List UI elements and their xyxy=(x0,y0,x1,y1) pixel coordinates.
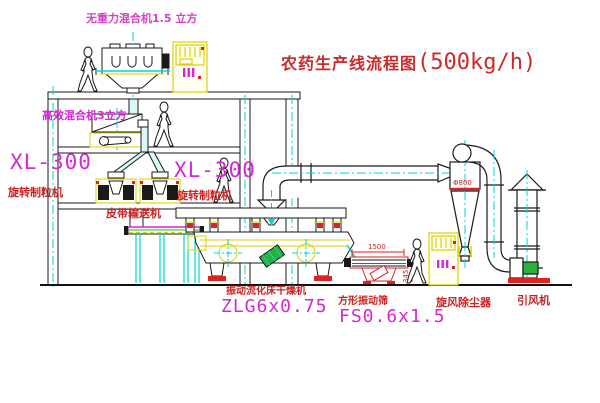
person-figure xyxy=(154,102,173,146)
dryer-feet xyxy=(208,263,332,281)
control-cabinet-ground xyxy=(429,233,458,285)
label-top-mixer: 无重力混合机1.5 立方 xyxy=(86,13,197,24)
label-sieve-model: FS0.6x1.5 xyxy=(339,308,446,326)
cabinet-meter-marks xyxy=(437,260,448,268)
cad-flow-diagram: 农药生产线流程图(500kg/h) 无重力混合机1.5 立方 高效混合机3立方 … xyxy=(0,0,600,403)
person-figure xyxy=(78,47,97,91)
label-granulator-mid-model: XL-300 xyxy=(174,160,256,181)
label-dryer-model: ZLG6x0.75 xyxy=(221,298,328,316)
y-splitter-chute xyxy=(111,152,166,174)
label-granulator-mid-name: 旋转制粒机 xyxy=(177,190,232,201)
conveyor-legs xyxy=(136,234,199,283)
title-text: 农药生产线流程图 xyxy=(281,54,417,73)
label-granulator-left-name: 旋转制粒机 xyxy=(8,187,63,198)
label-granulator-left-model: XL-300 xyxy=(10,152,92,173)
belt-conveyor xyxy=(124,226,204,283)
diagram-title: 农药生产线流程图(500kg/h) xyxy=(281,50,536,75)
label-cyclone-dim: Φ800 xyxy=(453,180,472,187)
label-fan-name: 引风机 xyxy=(517,295,550,306)
title-capacity: (500kg/h) xyxy=(417,50,536,75)
label-belt-conveyor: 皮带输送机 xyxy=(106,208,161,219)
gravity-free-mixer xyxy=(96,44,170,114)
label-sieve-dim-height: 345 xyxy=(403,270,410,283)
induced-draft-fan xyxy=(508,258,550,283)
cabinet-meter-marks xyxy=(183,68,194,77)
label-cyclone-name: 旋风除尘器 xyxy=(436,297,491,308)
dryer-spring-mounts xyxy=(184,218,343,232)
control-cabinet-top xyxy=(173,42,207,92)
rotary-granulator-left xyxy=(96,172,136,203)
label-high-eff-mixer: 高效混合机3立方 xyxy=(42,110,127,121)
label-sieve-dim-width: 1500 xyxy=(368,244,386,251)
